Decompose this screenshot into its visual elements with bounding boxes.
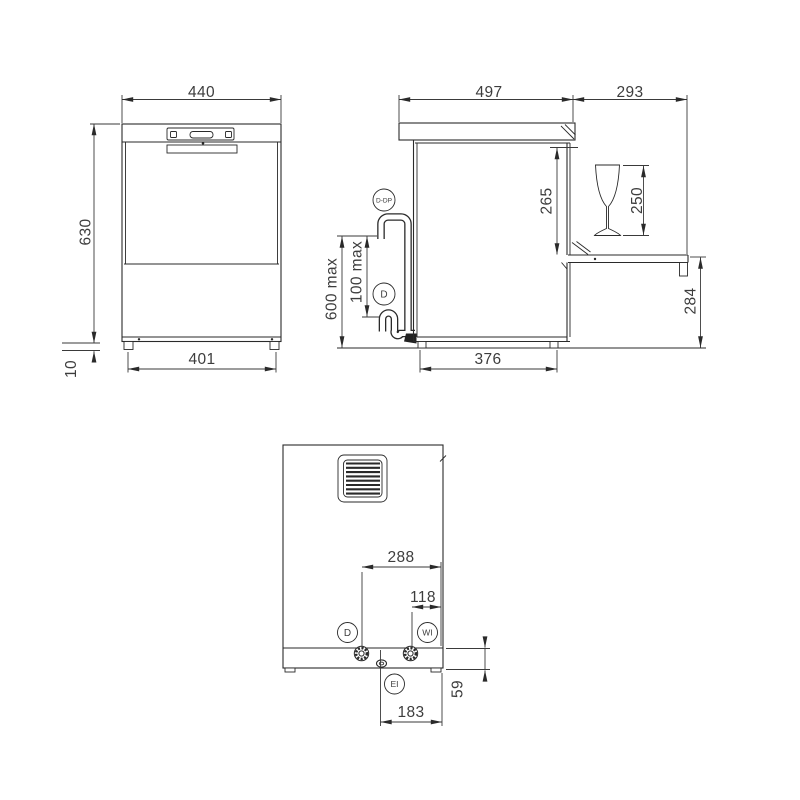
dim-door-to-floor-label: 284 bbox=[683, 287, 700, 314]
drain-label-side: D bbox=[373, 283, 395, 305]
dim-front-height-label: 630 bbox=[78, 218, 95, 245]
dim-drain-min-label: 100 max bbox=[349, 241, 366, 303]
drain-pump-label-text: D-DP bbox=[376, 197, 393, 204]
dim-connection-height-label: 59 bbox=[450, 680, 467, 698]
dim-feet-height-label: 10 bbox=[63, 360, 80, 378]
drain-pump-label: D-DP bbox=[373, 189, 395, 211]
drain-connector bbox=[354, 646, 368, 660]
dim-drain-min: 100 max bbox=[349, 237, 380, 318]
dim-front-width-label: 440 bbox=[188, 84, 215, 101]
water-inlet-connector bbox=[403, 646, 417, 660]
technical-drawing-page: 440 630 10 401 bbox=[0, 0, 800, 800]
dim-front-height: 630 bbox=[62, 124, 120, 351]
dim-glass-height-label: 250 bbox=[629, 187, 646, 214]
side-body-outline bbox=[399, 123, 576, 348]
dim-side-base-depth-label: 376 bbox=[474, 351, 501, 368]
dim-drain-max-label: 600 max bbox=[324, 258, 341, 320]
front-body-outline bbox=[122, 124, 281, 342]
dim-glass-height: 250 bbox=[623, 166, 649, 236]
dim-side-base-depth: 376 bbox=[420, 350, 557, 373]
dim-water-inlet-offset-label: 118 bbox=[410, 589, 436, 606]
dim-front-base-width: 401 bbox=[128, 351, 276, 373]
dim-drain-offset-label: 288 bbox=[387, 549, 414, 566]
electrical-label: EI bbox=[385, 674, 405, 694]
dishwasher-dimension-drawing: 440 630 10 401 bbox=[0, 0, 800, 800]
door-handle bbox=[167, 145, 237, 153]
back-view: D WI EI 288 118 59 bbox=[283, 445, 490, 726]
dim-front-width: 440 bbox=[122, 84, 281, 123]
dim-electrical-offset-label: 183 bbox=[397, 704, 424, 721]
dim-connection-height: 59 bbox=[446, 639, 490, 698]
dim-door-depth-label: 293 bbox=[616, 84, 643, 101]
electrical-connector bbox=[377, 660, 387, 667]
side-view: D-DP D 497 293 265 250 bbox=[324, 84, 707, 373]
water-inlet-label: WI bbox=[418, 623, 438, 643]
dim-front-base-width-label: 401 bbox=[188, 351, 215, 368]
electrical-label-text: EI bbox=[390, 679, 398, 689]
dim-door-depth: 293 bbox=[573, 84, 687, 254]
panel-button-right bbox=[226, 132, 232, 138]
panel-display bbox=[190, 132, 213, 139]
drain-label-back-text: D bbox=[344, 628, 351, 639]
drain-label-back: D bbox=[338, 623, 358, 643]
vent-grille bbox=[338, 455, 387, 502]
front-view: 440 630 10 401 bbox=[62, 84, 281, 378]
wine-glass-icon bbox=[595, 165, 621, 236]
dim-chamber-height: 265 bbox=[539, 148, 579, 255]
dim-side-depth: 497 bbox=[399, 84, 573, 122]
dim-chamber-height-label: 265 bbox=[539, 187, 556, 214]
open-door bbox=[568, 242, 688, 277]
drain-hose bbox=[381, 217, 417, 344]
dim-side-depth-label: 497 bbox=[475, 84, 502, 101]
drain-label-side-text: D bbox=[380, 290, 387, 301]
door-latch-dot bbox=[202, 142, 205, 145]
dim-feet-height: 10 bbox=[63, 351, 94, 378]
water-inlet-label-text: WI bbox=[422, 628, 432, 638]
door-end-tab bbox=[680, 263, 688, 277]
panel-button-left bbox=[171, 132, 177, 138]
